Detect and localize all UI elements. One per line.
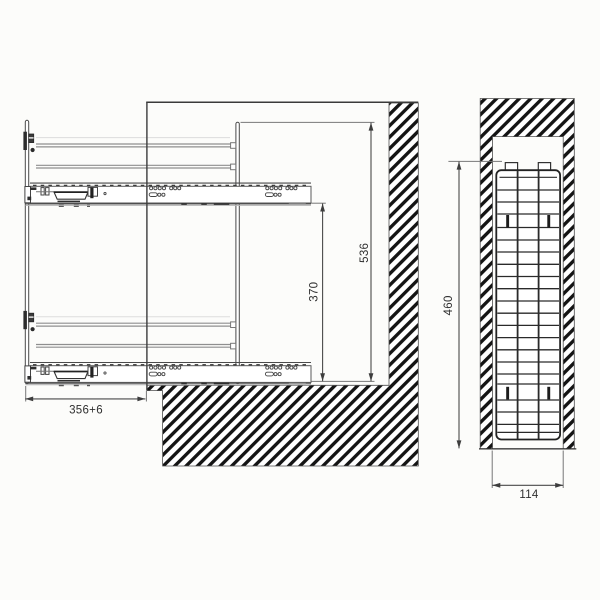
svg-text:460: 460 — [443, 295, 455, 315]
svg-text:370: 370 — [309, 282, 321, 302]
svg-text:536: 536 — [359, 243, 371, 263]
svg-text:356+6: 356+6 — [69, 404, 103, 416]
svg-text:114: 114 — [519, 489, 539, 501]
